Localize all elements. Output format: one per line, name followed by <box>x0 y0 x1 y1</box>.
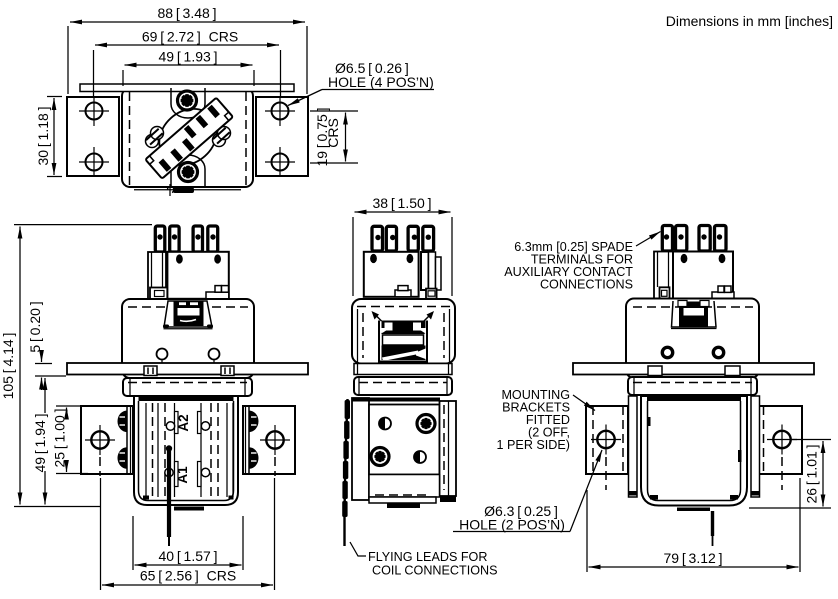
svg-text:COIL CONNECTIONS: COIL CONNECTIONS <box>372 564 497 578</box>
svg-text:FLYING LEADS FOR: FLYING LEADS FOR <box>368 550 487 564</box>
svg-text:79 [ 3.12 ]: 79 [ 3.12 ] <box>663 550 722 566</box>
svg-text:CRS: CRS <box>325 118 341 148</box>
svg-text:88 [ 3.48 ]: 88 [ 3.48 ] <box>157 5 216 21</box>
svg-text:1 PER SIDE): 1 PER SIDE) <box>497 438 570 452</box>
svg-text:CONNECTIONS: CONNECTIONS <box>540 278 633 292</box>
svg-text:A1: A1 <box>175 466 190 484</box>
svg-text:26 [ 1.01 ]: 26 [ 1.01 ] <box>804 444 820 503</box>
svg-text:30 [ 1.18 ]: 30 [ 1.18 ] <box>35 106 51 165</box>
svg-text:38 [ 1.50 ]: 38 [ 1.50 ] <box>372 195 431 211</box>
svg-text:Dimensions in mm [inches]: Dimensions in mm [inches] <box>666 13 833 29</box>
svg-text:49 [ 1.94 ]: 49 [ 1.94 ] <box>32 413 48 472</box>
svg-text:A2: A2 <box>176 414 191 431</box>
svg-text:25 [ 1.00 ]: 25 [ 1.00 ] <box>52 408 68 467</box>
svg-text:105 [ 4.14 ]: 105 [ 4.14 ] <box>0 333 16 400</box>
svg-text:69 [ 2.72 ] CRS: 69 [ 2.72 ] CRS <box>142 29 238 45</box>
svg-text:49 [ 1.93 ]: 49 [ 1.93 ] <box>158 49 217 65</box>
svg-text:65 [ 2.56 ] CRS: 65 [ 2.56 ] CRS <box>140 568 236 584</box>
svg-text:40 [ 1.57 ]: 40 [ 1.57 ] <box>158 548 217 564</box>
svg-text:5 [ 0.20 ]: 5 [ 0.20 ] <box>27 301 43 352</box>
svg-text:HOLE (2 POS’N): HOLE (2 POS’N) <box>459 517 565 533</box>
svg-text:HOLE (4 POS’N): HOLE (4 POS’N) <box>328 74 434 90</box>
